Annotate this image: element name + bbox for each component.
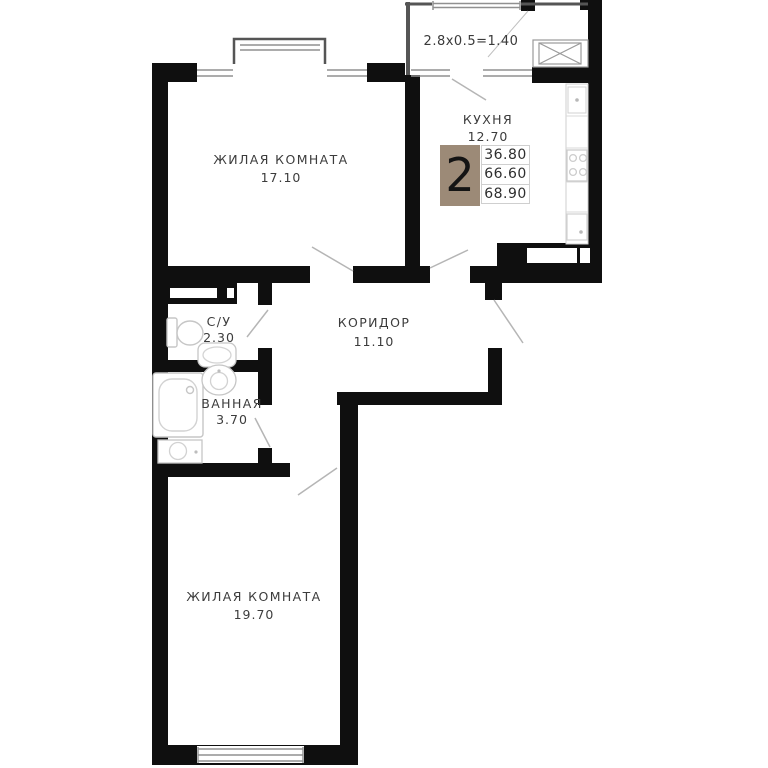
wall-middle-seg3 — [470, 266, 602, 283]
bath-label: ВАННАЯ — [182, 396, 282, 411]
window-room1-right — [327, 70, 367, 76]
kitchen-counter — [566, 84, 588, 244]
floorplan-drawing — [0, 0, 768, 768]
room1-area: 17.10 — [176, 170, 386, 185]
bath-sink-icon — [202, 365, 236, 395]
balcony-door-sills — [411, 70, 532, 76]
rooms-count-badge: 2 — [440, 145, 480, 206]
door-room2 — [298, 468, 337, 495]
bath-area: 3.70 — [182, 412, 282, 427]
apartment-area-value: 66.60 — [481, 164, 530, 184]
kitchen-area: 12.70 — [428, 129, 548, 144]
room1-label: ЖИЛАЯ КОМНАТА — [176, 152, 386, 167]
corridor-area: 11.10 — [314, 334, 434, 349]
washing-machine-icon — [158, 440, 202, 463]
wall-wc-right-a — [258, 283, 272, 305]
wall-middle-seg1 — [152, 266, 310, 283]
wall-top-right-segment — [367, 63, 405, 82]
wall-right-exterior — [588, 8, 602, 283]
wall-entrance-stub-top — [485, 283, 502, 300]
wall-room2-right — [340, 392, 358, 765]
wall-corridor-bottom — [337, 392, 502, 405]
balcony-cabinet — [533, 40, 588, 67]
wc-sink-icon — [198, 343, 236, 367]
door-room1 — [312, 247, 353, 271]
room2-label: ЖИЛАЯ КОМНАТА — [149, 589, 359, 604]
wc-area: 2.30 — [179, 330, 259, 345]
door-kitchen — [430, 250, 468, 268]
balcony-formula: 2.8x0.5=1.40 — [408, 34, 534, 49]
wc-label: С/У — [179, 314, 259, 329]
window-room2 — [198, 747, 303, 763]
wall-bath-bottom — [152, 463, 290, 477]
door-entrance — [494, 300, 523, 343]
area-values: 36.80 66.60 68.90 — [481, 145, 530, 206]
bay-window — [234, 39, 325, 64]
wall-entrance-stub-bottom — [488, 348, 502, 392]
window-room1-left — [197, 70, 233, 76]
kitchen-label: КУХНЯ — [428, 112, 548, 127]
floorplan: ЖИЛАЯ КОМНАТА 17.10 КУХНЯ 12.70 С/У 2.30… — [0, 0, 768, 768]
living-area-value: 36.80 — [481, 145, 530, 165]
room2-area: 19.70 — [149, 607, 359, 622]
wall-top-left-segment — [152, 63, 197, 82]
total-area-value: 68.90 — [481, 184, 530, 204]
wall-middle-seg2 — [353, 266, 430, 283]
wall-kitchen-left — [405, 75, 420, 283]
corridor-label: КОРИДОР — [314, 315, 434, 330]
door-balcony — [452, 79, 486, 100]
apartment-info-box: 2 36.80 66.60 68.90 — [440, 145, 531, 206]
